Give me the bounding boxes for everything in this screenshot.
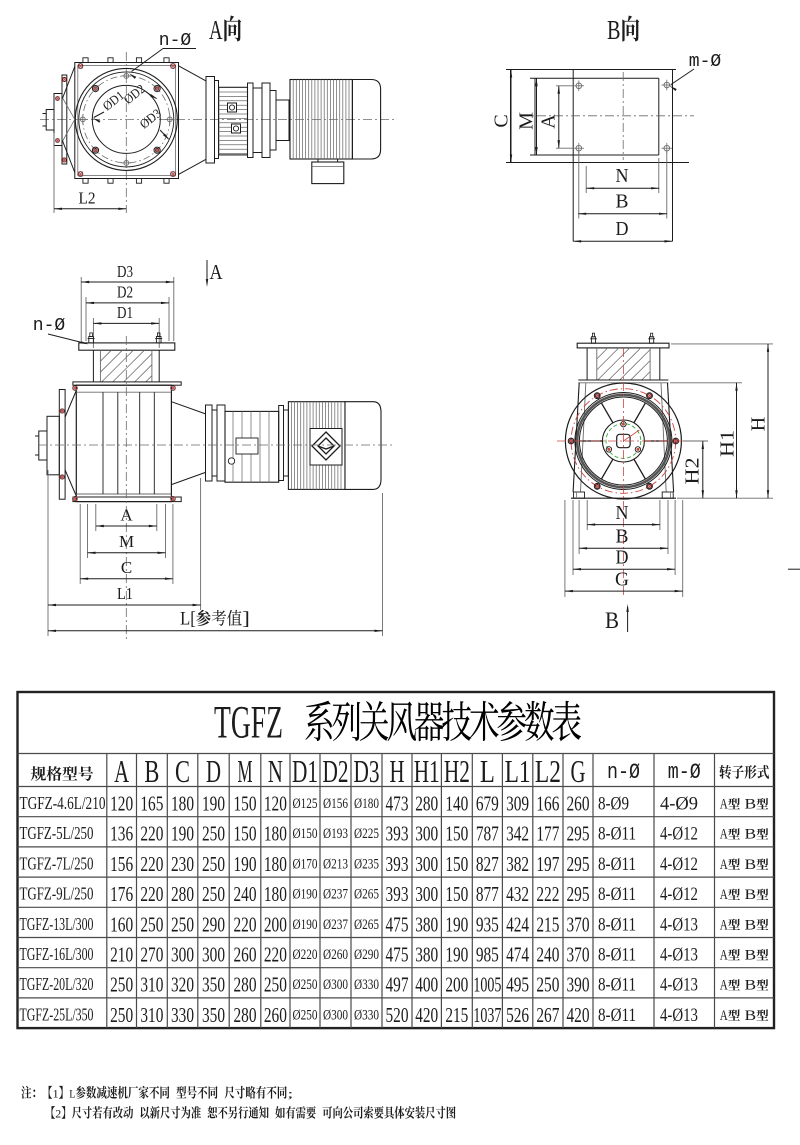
- svg-text:Ø265: Ø265: [354, 887, 379, 903]
- svg-text:B: B: [740, 917, 756, 933]
- svg-text:A: A: [720, 978, 728, 994]
- svg-text:220: 220: [140, 822, 163, 846]
- svg-text:n-Ø: n-Ø: [33, 316, 66, 336]
- svg-text:L[: L[: [180, 609, 196, 630]
- svg-text:A: A: [720, 1008, 728, 1024]
- svg-text:827: 827: [476, 852, 499, 876]
- svg-text:877: 877: [476, 882, 499, 906]
- svg-text:150: 150: [445, 882, 468, 906]
- svg-text:L1: L1: [117, 584, 133, 603]
- svg-text:250: 250: [140, 912, 163, 936]
- svg-text:156: 156: [110, 852, 133, 876]
- svg-text:380: 380: [415, 943, 438, 967]
- svg-text:L2: L2: [79, 189, 96, 208]
- svg-text:474: 474: [506, 943, 529, 967]
- svg-text:H2: H2: [682, 458, 704, 485]
- svg-text:B: B: [616, 526, 629, 548]
- svg-text:TGFZ-4.6L/210: TGFZ-4.6L/210: [20, 793, 106, 813]
- svg-text:393: 393: [386, 822, 409, 846]
- svg-text:Ø193: Ø193: [323, 826, 348, 842]
- svg-text:250: 250: [171, 912, 194, 936]
- svg-text:295: 295: [567, 882, 590, 906]
- svg-text:250: 250: [264, 973, 287, 997]
- svg-text:TGFZ-25L/350: TGFZ-25L/350: [20, 1004, 94, 1024]
- svg-text:300: 300: [202, 943, 225, 967]
- svg-text:250: 250: [110, 1003, 133, 1027]
- svg-text:A: A: [538, 114, 560, 129]
- svg-text:495: 495: [506, 973, 529, 997]
- svg-text:TGFZ-13L/300: TGFZ-13L/300: [20, 914, 94, 934]
- svg-text:Ø156: Ø156: [323, 796, 348, 812]
- svg-text:300: 300: [415, 882, 438, 906]
- svg-text:250: 250: [202, 822, 225, 846]
- svg-text:D1: D1: [117, 303, 133, 322]
- svg-text:165: 165: [140, 792, 163, 816]
- svg-text:260: 260: [234, 943, 257, 967]
- svg-text:8-Ø11: 8-Ø11: [598, 824, 636, 845]
- svg-text:TGFZ-5L/250: TGFZ-5L/250: [20, 823, 94, 843]
- svg-text:250: 250: [202, 882, 225, 906]
- svg-text:497: 497: [386, 973, 409, 997]
- svg-text:B: B: [740, 887, 756, 903]
- svg-text:G: G: [615, 569, 629, 591]
- svg-text:A: A: [720, 797, 728, 813]
- svg-text:310: 310: [140, 973, 163, 997]
- svg-text:390: 390: [567, 973, 590, 997]
- svg-text:230: 230: [171, 852, 194, 876]
- svg-text:Ø300: Ø300: [323, 1007, 348, 1023]
- svg-text:L1: L1: [505, 753, 531, 789]
- svg-text:240: 240: [234, 882, 257, 906]
- svg-text:280: 280: [234, 1003, 257, 1027]
- svg-text:Ø330: Ø330: [354, 977, 379, 993]
- svg-text:280: 280: [171, 882, 194, 906]
- svg-text:393: 393: [386, 882, 409, 906]
- svg-text:A: A: [209, 15, 223, 45]
- svg-text:300: 300: [415, 822, 438, 846]
- svg-text:180: 180: [264, 822, 287, 846]
- svg-text:250: 250: [202, 852, 225, 876]
- svg-text:222: 222: [536, 882, 559, 906]
- svg-text:H1: H1: [414, 753, 440, 789]
- svg-text:4-Ø12: 4-Ø12: [660, 884, 698, 905]
- svg-text:G: G: [571, 753, 586, 789]
- svg-text:432: 432: [506, 882, 529, 906]
- svg-text:1: 1: [53, 1087, 59, 1101]
- svg-text:1037: 1037: [473, 1003, 501, 1027]
- svg-text:Ø290: Ø290: [354, 947, 379, 963]
- svg-text:8-Ø11: 8-Ø11: [598, 975, 636, 996]
- svg-text:N: N: [616, 502, 629, 524]
- svg-text:380: 380: [415, 912, 438, 936]
- svg-text:n-Ø: n-Ø: [607, 760, 640, 785]
- svg-text:m-Ø: m-Ø: [668, 760, 701, 785]
- svg-text:Ø213: Ø213: [323, 856, 348, 872]
- svg-text:140: 140: [445, 792, 468, 816]
- svg-text:Ø265: Ø265: [354, 917, 379, 933]
- svg-text:TGFZ-20L/320: TGFZ-20L/320: [20, 974, 94, 994]
- svg-text:295: 295: [567, 852, 590, 876]
- svg-text:220: 220: [140, 852, 163, 876]
- svg-text:Ø237: Ø237: [323, 917, 348, 933]
- svg-text:Ø237: Ø237: [323, 887, 348, 903]
- svg-text:197: 197: [536, 852, 559, 876]
- svg-text:Ø150: Ø150: [293, 826, 318, 842]
- svg-text:370: 370: [567, 912, 590, 936]
- svg-text:]: ]: [242, 609, 250, 630]
- svg-text:TGFZ-7L/250: TGFZ-7L/250: [20, 853, 94, 873]
- svg-text:D1: D1: [292, 753, 318, 789]
- svg-text:300: 300: [415, 852, 438, 876]
- svg-text:260: 260: [264, 1003, 287, 1027]
- svg-text:180: 180: [171, 792, 194, 816]
- svg-text:240: 240: [536, 943, 559, 967]
- svg-text:393: 393: [386, 852, 409, 876]
- svg-text:342: 342: [506, 822, 529, 846]
- svg-text:935: 935: [476, 912, 499, 936]
- svg-text:B: B: [605, 608, 619, 633]
- svg-text:C: C: [491, 114, 513, 127]
- svg-text:177: 177: [536, 822, 559, 846]
- svg-text:A: A: [114, 753, 129, 789]
- svg-text:320: 320: [171, 973, 194, 997]
- svg-text:Ø250: Ø250: [293, 977, 318, 993]
- svg-text:120: 120: [264, 792, 287, 816]
- svg-text:D3: D3: [117, 262, 133, 281]
- svg-text:A: A: [720, 887, 728, 903]
- svg-text:Ø330: Ø330: [354, 1007, 379, 1023]
- svg-text:L: L: [69, 1087, 75, 1101]
- svg-text:400: 400: [415, 973, 438, 997]
- svg-text:420: 420: [567, 1003, 590, 1027]
- svg-text:420: 420: [415, 1003, 438, 1027]
- svg-text:A: A: [720, 857, 728, 873]
- svg-text:M: M: [238, 753, 253, 789]
- svg-text:M: M: [119, 532, 134, 551]
- svg-text:150: 150: [234, 792, 257, 816]
- svg-text:D2: D2: [117, 283, 133, 302]
- svg-text:A: A: [720, 917, 728, 933]
- svg-text:4-Ø12: 4-Ø12: [660, 824, 698, 845]
- svg-text:190: 190: [234, 852, 257, 876]
- svg-text:2: 2: [55, 1107, 61, 1121]
- svg-text:L: L: [480, 753, 495, 789]
- svg-text:D3: D3: [354, 753, 380, 789]
- svg-text:Ø250: Ø250: [293, 1007, 318, 1023]
- svg-text:190: 190: [202, 792, 225, 816]
- svg-text:4-Ø13: 4-Ø13: [660, 945, 698, 966]
- svg-text:260: 260: [567, 792, 590, 816]
- svg-text:200: 200: [445, 973, 468, 997]
- svg-text:150: 150: [445, 852, 468, 876]
- svg-text:200: 200: [264, 912, 287, 936]
- svg-text:210: 210: [110, 943, 133, 967]
- svg-text:C: C: [121, 558, 132, 577]
- svg-text:309: 309: [506, 792, 529, 816]
- svg-text:8-Ø9: 8-Ø9: [598, 794, 629, 815]
- svg-text:B: B: [740, 978, 756, 994]
- svg-text:Ø190: Ø190: [293, 887, 318, 903]
- svg-text:B: B: [607, 15, 621, 45]
- svg-text:B: B: [740, 827, 756, 843]
- svg-text:A: A: [720, 948, 728, 964]
- svg-text:190: 190: [445, 943, 468, 967]
- svg-text:D: D: [616, 547, 629, 569]
- svg-text:4-Ø13: 4-Ø13: [660, 975, 698, 996]
- svg-text:B: B: [740, 948, 756, 964]
- svg-text:8-Ø11: 8-Ø11: [598, 884, 636, 905]
- svg-text:L2: L2: [535, 753, 561, 789]
- svg-text:A: A: [210, 260, 224, 284]
- svg-text:267: 267: [536, 1003, 559, 1027]
- svg-text:526: 526: [506, 1003, 529, 1027]
- svg-text:D2: D2: [323, 753, 349, 789]
- svg-text:475: 475: [386, 943, 409, 967]
- svg-text:120: 120: [110, 792, 133, 816]
- svg-text:8-Ø11: 8-Ø11: [598, 914, 636, 935]
- svg-text:B: B: [144, 753, 159, 789]
- svg-text:150: 150: [445, 822, 468, 846]
- svg-text:166: 166: [536, 792, 559, 816]
- svg-text:4-Ø12: 4-Ø12: [660, 854, 698, 875]
- svg-text:B: B: [740, 797, 756, 813]
- svg-text:Ø220: Ø220: [293, 947, 318, 963]
- svg-text:290: 290: [202, 912, 225, 936]
- svg-text:H1: H1: [717, 430, 739, 457]
- svg-text:Ø180: Ø180: [354, 796, 379, 812]
- svg-text:190: 190: [445, 912, 468, 936]
- svg-text:A: A: [720, 827, 728, 843]
- svg-text:4-Ø13: 4-Ø13: [660, 914, 698, 935]
- svg-text:215: 215: [536, 912, 559, 936]
- svg-text:A: A: [120, 506, 133, 525]
- svg-text:270: 270: [140, 943, 163, 967]
- svg-text:Ø125: Ø125: [293, 796, 318, 812]
- svg-text:176: 176: [110, 882, 133, 906]
- svg-text:Ø225: Ø225: [354, 826, 379, 842]
- svg-text:180: 180: [264, 882, 287, 906]
- svg-text:985: 985: [476, 943, 499, 967]
- svg-text:Ø260: Ø260: [323, 947, 348, 963]
- svg-text:1005: 1005: [473, 973, 501, 997]
- svg-text:C: C: [175, 753, 190, 789]
- svg-text:330: 330: [171, 1003, 194, 1027]
- svg-text:520: 520: [386, 1003, 409, 1027]
- svg-text:220: 220: [234, 912, 257, 936]
- svg-text:787: 787: [476, 822, 499, 846]
- svg-text:H: H: [748, 417, 770, 431]
- svg-text:H: H: [390, 753, 405, 789]
- svg-text:N: N: [268, 753, 283, 789]
- svg-text:220: 220: [264, 943, 287, 967]
- svg-text:Ø190: Ø190: [293, 917, 318, 933]
- svg-text:370: 370: [567, 943, 590, 967]
- svg-text:150: 150: [234, 822, 257, 846]
- svg-text:350: 350: [202, 973, 225, 997]
- svg-text:382: 382: [506, 852, 529, 876]
- svg-text:8-Ø11: 8-Ø11: [598, 1005, 636, 1026]
- svg-text:180: 180: [264, 852, 287, 876]
- svg-text:M: M: [516, 112, 538, 130]
- svg-text:4-Ø9: 4-Ø9: [660, 794, 698, 815]
- svg-text:280: 280: [415, 792, 438, 816]
- svg-text:215: 215: [445, 1003, 468, 1027]
- svg-text:679: 679: [476, 792, 499, 816]
- svg-text:300: 300: [171, 943, 194, 967]
- svg-text:B: B: [740, 857, 756, 873]
- svg-text:190: 190: [171, 822, 194, 846]
- svg-text:8-Ø11: 8-Ø11: [598, 945, 636, 966]
- svg-text:Ø300: Ø300: [323, 977, 348, 993]
- svg-text:B: B: [740, 1008, 756, 1024]
- svg-text:160: 160: [110, 912, 133, 936]
- svg-text:250: 250: [110, 973, 133, 997]
- svg-text:475: 475: [386, 912, 409, 936]
- svg-text:350: 350: [202, 1003, 225, 1027]
- svg-text:220: 220: [140, 882, 163, 906]
- svg-text:H2: H2: [444, 753, 470, 789]
- svg-text:D: D: [616, 218, 629, 240]
- svg-text:136: 136: [110, 822, 133, 846]
- svg-text:Ø170: Ø170: [293, 856, 318, 872]
- svg-text:8-Ø11: 8-Ø11: [598, 854, 636, 875]
- svg-text:Ø235: Ø235: [354, 856, 379, 872]
- svg-text:TGFZ-9L/250: TGFZ-9L/250: [20, 884, 94, 904]
- svg-text:295: 295: [567, 822, 590, 846]
- svg-text:N: N: [616, 165, 629, 187]
- svg-text:TGFZ: TGFZ: [214, 697, 283, 749]
- svg-text:473: 473: [386, 792, 409, 816]
- svg-text:4-Ø13: 4-Ø13: [660, 1005, 698, 1026]
- svg-text:280: 280: [234, 973, 257, 997]
- svg-text:;: ;: [287, 1087, 293, 1101]
- svg-text:B: B: [616, 191, 629, 213]
- svg-text:250: 250: [536, 973, 559, 997]
- svg-text:424: 424: [506, 912, 529, 936]
- svg-text:310: 310: [140, 1003, 163, 1027]
- svg-text:D: D: [206, 753, 221, 789]
- svg-text:TGFZ-16L/300: TGFZ-16L/300: [20, 944, 94, 964]
